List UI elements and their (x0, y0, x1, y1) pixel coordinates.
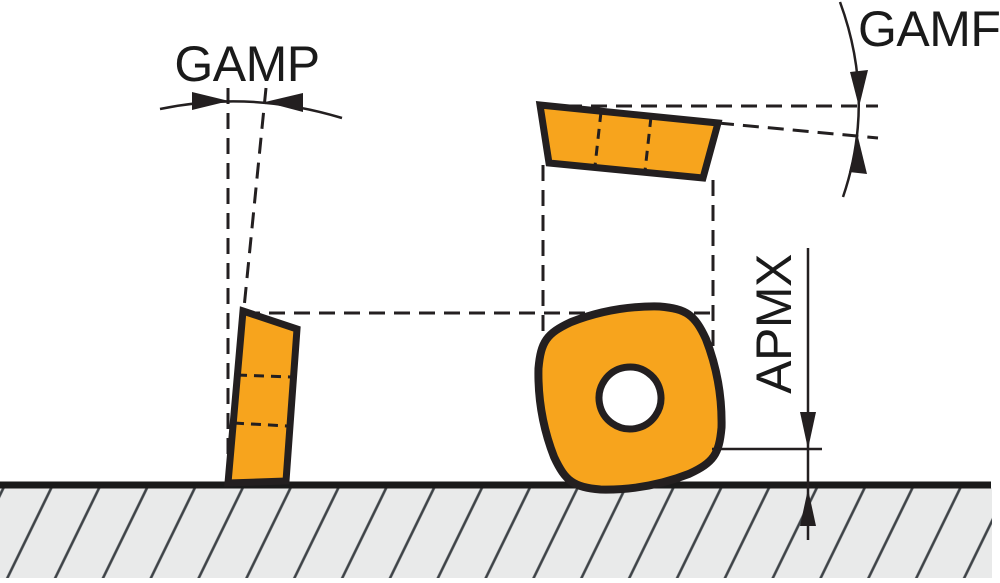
gamp-arrow-right-icon (192, 92, 229, 110)
apmx-arrow-down-icon (800, 412, 816, 449)
gamp-label: GAMP (174, 36, 319, 92)
gamp-edge-extension-line (244, 88, 266, 308)
gamf-label: GAMF (858, 1, 1000, 57)
apmx-label: APMX (746, 254, 802, 394)
face-view-insert (526, 294, 733, 501)
diagram-canvas: GAMP GAMF APMX (0, 0, 1000, 583)
radial-view-insert (540, 105, 718, 178)
gamp-arrow-left-icon (265, 93, 303, 112)
gamf-edge-extension-line (718, 123, 878, 138)
gamf-arrow-down-icon (850, 70, 868, 107)
gamf-arrow-up-icon (849, 137, 867, 174)
insert-geometry-diagram: GAMP GAMF APMX (0, 0, 1000, 583)
radial-insert-body (540, 105, 718, 178)
gamf-dimension: GAMF (840, 1, 1000, 197)
machined-surface (0, 485, 992, 578)
gamp-dimension: GAMP (160, 36, 342, 118)
gamp-dimension-arc (160, 101, 342, 118)
surface-hatch (0, 488, 992, 578)
axial-view-insert (228, 311, 297, 483)
axial-insert-body (228, 311, 297, 483)
